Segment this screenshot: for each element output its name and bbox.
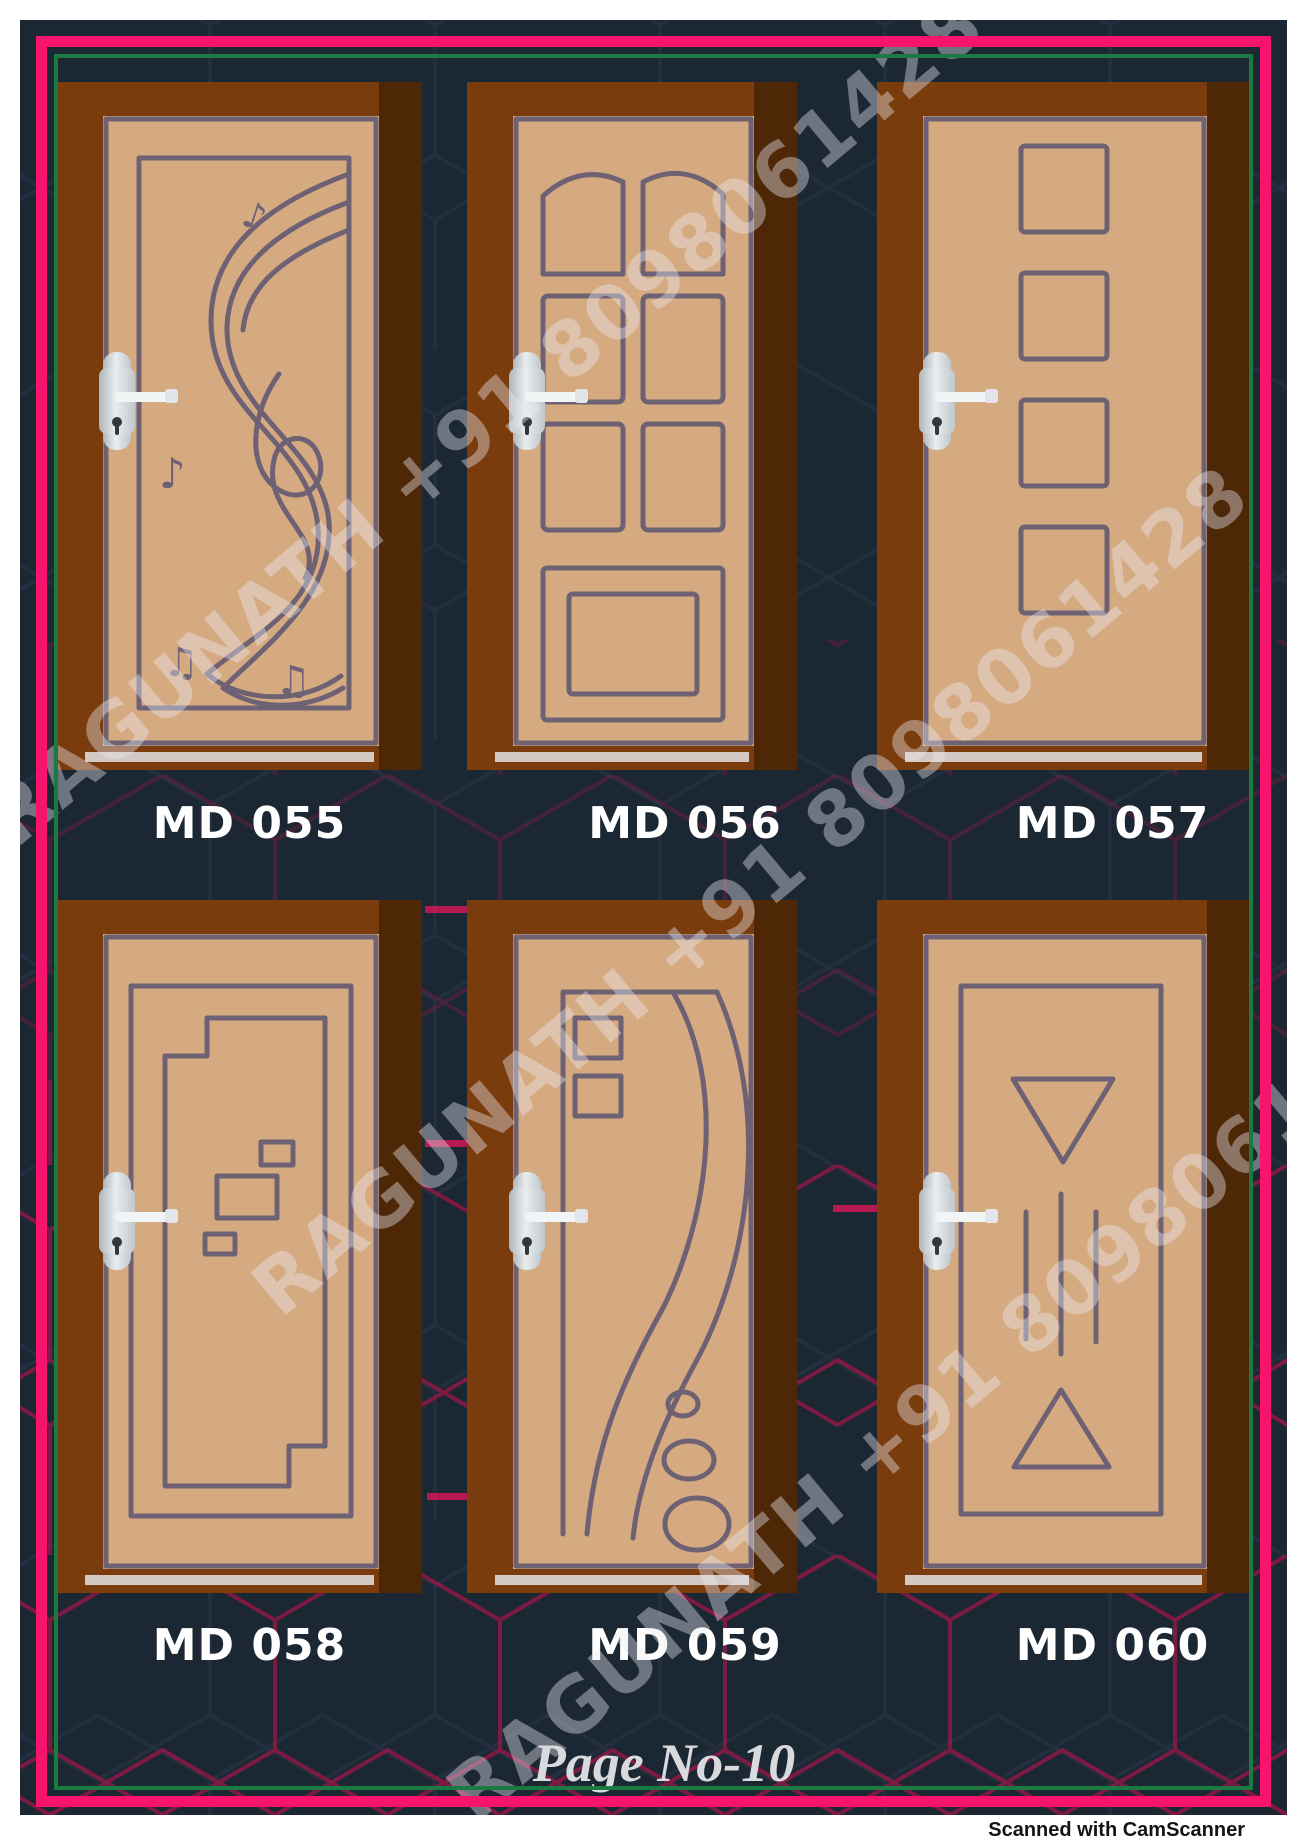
- hex-seam-dash: [427, 1493, 471, 1500]
- door-handle-icon: [501, 1162, 593, 1280]
- catalog-scan-page: ♪ ♪ ♫ ♫: [0, 0, 1307, 1847]
- scanner-footer-strip: Scanned with CamScanner: [0, 1815, 1307, 1847]
- door-label-md-058: MD 058: [67, 1620, 432, 1672]
- door-threshold: [85, 1575, 374, 1585]
- hex-seam-dash: [425, 906, 469, 913]
- door-threshold: [905, 1575, 1202, 1585]
- door-handle-icon: [91, 342, 183, 460]
- door-label-md-057: MD 057: [926, 798, 1287, 850]
- hex-seam-dash: [833, 1205, 877, 1212]
- door-handle-icon: [911, 1162, 1003, 1280]
- door-threshold: [495, 752, 749, 762]
- door-handle-icon: [91, 1162, 183, 1280]
- door-frame-shadow: [1207, 82, 1250, 770]
- catalog-canvas: ♪ ♪ ♫ ♫: [20, 20, 1287, 1815]
- door-label-md-060: MD 060: [926, 1620, 1287, 1672]
- door-frame-shadow: [1207, 900, 1250, 1593]
- page-number: Page No-10: [464, 1732, 864, 1802]
- svg-text:♫: ♫: [275, 658, 311, 704]
- door-label-md-055: MD 055: [67, 798, 432, 850]
- door-handle-icon: [911, 342, 1003, 460]
- page-number-text: Page No-10: [521, 1732, 807, 1802]
- camscanner-note: Scanned with CamScanner: [988, 1819, 1245, 1842]
